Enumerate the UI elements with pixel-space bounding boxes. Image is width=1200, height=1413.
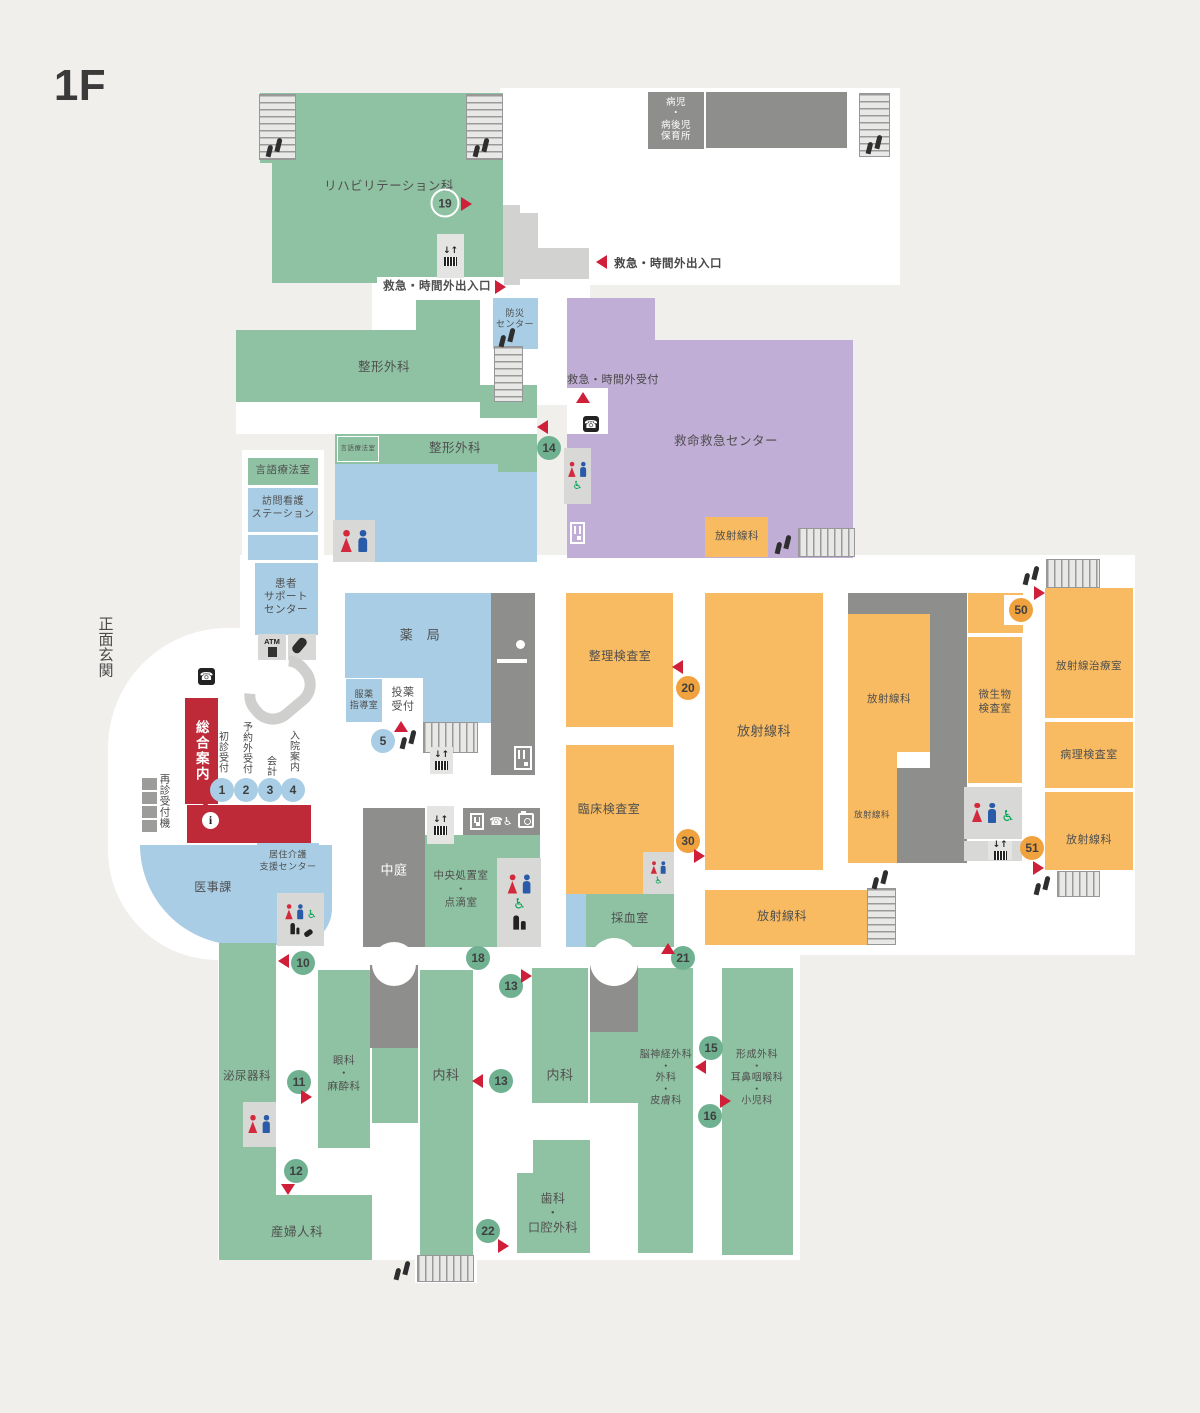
room-microbiology-lab [968, 637, 1022, 783]
elevator-icon [437, 234, 464, 278]
stair-people-icon [771, 533, 797, 554]
stairs-icon [494, 346, 523, 402]
room-dispensing-reception [383, 678, 423, 723]
man-icon [659, 861, 666, 874]
room-plastic-ent-pediatrics [722, 968, 793, 1255]
msq-icon [142, 778, 157, 790]
marker-13: 13 [499, 974, 523, 998]
direction-arrow [537, 420, 548, 434]
vend-icon [470, 813, 484, 830]
direction-arrow [694, 849, 705, 863]
room-residence-care-support [257, 843, 319, 881]
stairs-icon [417, 1255, 474, 1282]
stair-people-icon [495, 326, 521, 347]
room-radiology-er [705, 517, 768, 557]
room-room-blue [566, 894, 586, 947]
marker-4: 4 [281, 778, 305, 802]
wheelchair-icon: ♿ [307, 908, 317, 919]
floor-title-label: 1F [54, 61, 106, 111]
room-obgyn [219, 1195, 372, 1260]
direction-arrow [394, 721, 408, 732]
direction-arrow [498, 1239, 509, 1253]
room-pathology-lab [1045, 722, 1133, 788]
parent-child-icon [288, 922, 301, 936]
room-green-notch [498, 458, 537, 472]
wheelchair-icon: ♿ [572, 479, 582, 490]
room-blood-sampling [586, 894, 674, 947]
room-dental-oral-surgery [533, 1140, 590, 1173]
room-green-column [590, 1032, 638, 1103]
phone-icon: ☎ [198, 668, 215, 685]
elevator-icon [430, 747, 453, 774]
marker-22: 22 [476, 1219, 500, 1243]
direction-arrow [720, 1094, 731, 1108]
wicon-cam-icon [518, 813, 534, 828]
marker-13: 13 [489, 1069, 513, 1093]
room-physiology-exam-room [566, 593, 673, 727]
marker-51: 51 [1020, 836, 1044, 860]
wheelchair-icon: ♿ [654, 876, 662, 885]
room-radiotherapy-room [1045, 588, 1133, 718]
direction-arrow [596, 255, 607, 269]
direction-arrow [661, 943, 675, 954]
room-radiology-right-lower [1045, 792, 1133, 870]
woman-icon [284, 904, 293, 920]
toilet-icon [243, 1102, 276, 1147]
room-gray-column [930, 614, 967, 768]
room-gray-block [897, 768, 967, 863]
room-radiology-right-small [848, 752, 897, 863]
room-rehabilitation [272, 150, 503, 283]
marker-10: 10 [291, 951, 315, 975]
man-icon [295, 904, 304, 920]
stairs-icon [1046, 559, 1100, 588]
direction-arrow [281, 1184, 295, 1195]
direction-arrow [301, 1090, 312, 1104]
direction-arrow [695, 1060, 706, 1074]
parent-child-icon [511, 914, 527, 931]
direction-arrow [1034, 586, 1045, 600]
stairs-icon [1057, 871, 1100, 897]
toilet-icon: ♿ [497, 858, 541, 947]
room-orthopedics [236, 330, 416, 402]
room-courtyard [363, 808, 425, 947]
toilet-icon: ♿ [964, 789, 1022, 837]
wheelchair-icon: ♿ [1001, 809, 1014, 824]
room-gray-block [706, 92, 847, 148]
er-reception-label: 救急・時間外受付 [567, 371, 659, 387]
marker-1: 1 [210, 778, 234, 802]
toilet-icon: ♿ [643, 852, 674, 894]
wicon-phone-icon: ☎♿ [489, 812, 513, 830]
first-visit-reception-label: 初診受付 [215, 731, 230, 773]
room-sick-child-nursery [648, 92, 704, 149]
marker-20: 20 [676, 676, 700, 700]
marker-50: 50 [1009, 598, 1033, 622]
stair-people-icon [469, 136, 495, 157]
stair-people-icon [862, 133, 888, 154]
room-ophthalmology-anesthesiology [318, 970, 370, 1148]
room-visiting-nurse-station [248, 488, 318, 532]
elevator-icon [427, 806, 454, 844]
wcirc-icon [372, 942, 416, 986]
vend-icon [514, 746, 532, 770]
stair-people-icon [1030, 874, 1056, 895]
marker-2: 2 [234, 778, 258, 802]
marker-3: 3 [258, 778, 282, 802]
toilet-icon [333, 520, 375, 562]
room-green-column [372, 1048, 418, 1123]
nursing-icon [303, 928, 313, 937]
wcirc-icon [590, 938, 638, 986]
man-icon [261, 1115, 272, 1134]
stair-people-icon [262, 136, 288, 157]
direction-arrow [472, 1074, 483, 1088]
room-room-blue [248, 535, 318, 560]
man-icon [986, 803, 998, 824]
direction-arrow [672, 660, 683, 674]
direction-arrow [278, 954, 289, 968]
direction-arrow [495, 280, 506, 294]
room-dental-oral-surgery [517, 1173, 590, 1253]
woman-icon [650, 861, 657, 874]
room-internal-medicine-2 [532, 968, 588, 1103]
room-neurosurgery-surgery-dermatology [638, 968, 693, 1253]
elevator-icon [988, 841, 1012, 860]
stairs-icon [798, 528, 855, 557]
wheelchair-icon: ♿ [513, 897, 526, 911]
no-appointment-reception-label: 予約外受付 [239, 722, 254, 775]
phone-icon: ☎ [583, 416, 599, 432]
room-internal-medicine [420, 970, 473, 1255]
vend-icon [570, 522, 585, 544]
room-central-treatment [463, 835, 540, 858]
man-icon [579, 461, 588, 477]
room-er-exit-label-box [377, 277, 504, 298]
woman-icon [339, 529, 352, 552]
room-medication-guidance [345, 678, 383, 723]
marker-14: 14 [537, 436, 561, 460]
marker-5: 5 [371, 729, 395, 753]
room-orthopedics [416, 300, 480, 402]
room-pharmacy [423, 678, 491, 723]
recheck-machine-label: 再診受付機 [158, 774, 173, 829]
direction-arrow [461, 197, 472, 211]
marker-12: 12 [284, 1159, 308, 1183]
direction-arrow [1033, 861, 1044, 875]
info-icon: i [202, 812, 219, 829]
marker-18: 18 [466, 946, 490, 970]
desk-icon [494, 638, 532, 668]
woman-icon [567, 461, 576, 477]
stair-people-icon [1019, 564, 1045, 585]
woman-icon [506, 874, 517, 894]
main-entrance-label: 正面玄関 [95, 616, 116, 678]
woman-icon [247, 1115, 258, 1134]
room-radiology-center [705, 593, 823, 870]
room-pharmacy [345, 593, 491, 678]
msq-icon [142, 792, 157, 804]
room-gray-band [848, 593, 967, 614]
room-language-therapy [248, 458, 318, 485]
cashier-label: 会計 [263, 756, 278, 777]
stairs-icon [867, 888, 896, 945]
room-radiology-bottom [705, 890, 868, 945]
woman-icon [971, 803, 983, 824]
toilet-icon: ♿ [564, 448, 591, 504]
room-language-therapy-room [337, 436, 379, 462]
room-corridor [503, 205, 520, 285]
direction-arrow [576, 392, 590, 403]
room-patient-support-center [255, 563, 318, 635]
marker-19: 19 [431, 189, 460, 218]
admission-info-label: 入院案内 [286, 730, 301, 772]
er-exit-right-label: 救急・時間外出入口 [614, 255, 722, 271]
stair-people-icon [390, 1259, 416, 1280]
stair-people-icon [868, 868, 894, 889]
floor-map: リハビリテーション科病児 ・ 病後児 保育所整形外科防災 センター救命救急センタ… [0, 0, 1200, 1413]
direction-arrow [521, 969, 532, 983]
man-icon [520, 874, 531, 894]
toilet-icon: ♿ [277, 893, 324, 946]
marker-16: 16 [698, 1104, 722, 1128]
msq-icon [142, 806, 157, 818]
man-icon [356, 529, 369, 552]
marker-15: 15 [699, 1036, 723, 1060]
msq-icon [142, 820, 157, 832]
room-radiology-right-upper [848, 614, 930, 752]
